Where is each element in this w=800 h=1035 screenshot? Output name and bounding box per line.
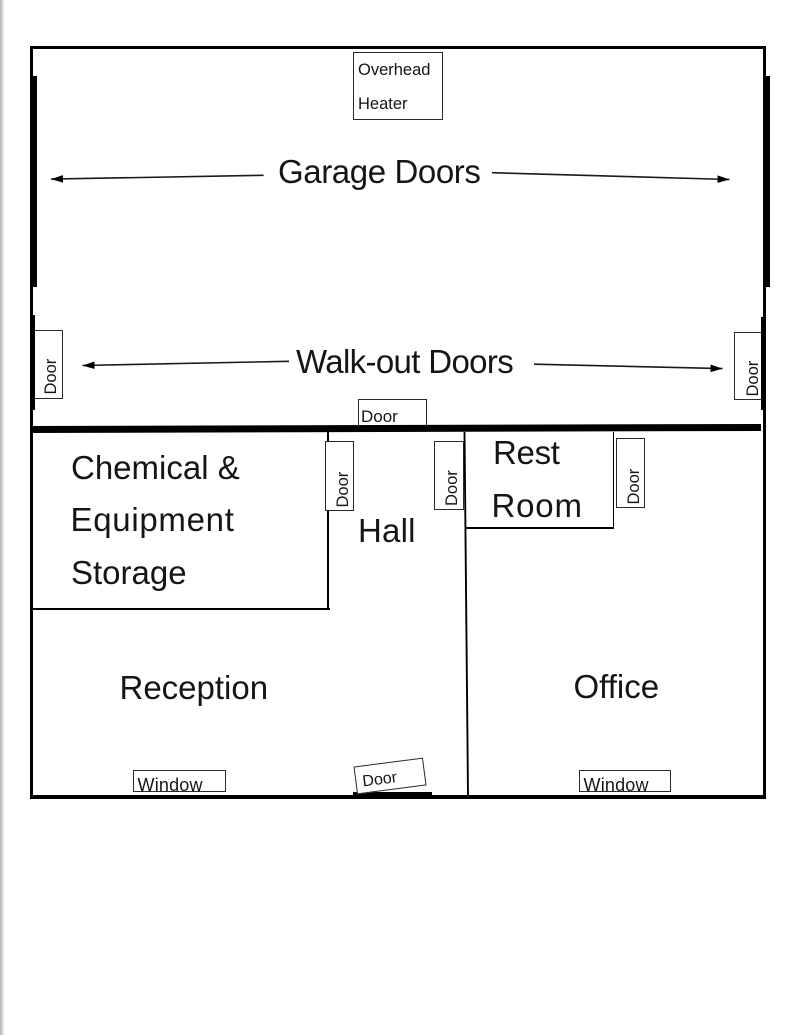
- svg-text:Door: Door: [42, 358, 60, 394]
- svg-text:Door: Door: [625, 468, 643, 504]
- svg-text:Door: Door: [443, 470, 461, 506]
- svg-text:Door: Door: [744, 360, 762, 396]
- svg-text:Door: Door: [334, 471, 352, 507]
